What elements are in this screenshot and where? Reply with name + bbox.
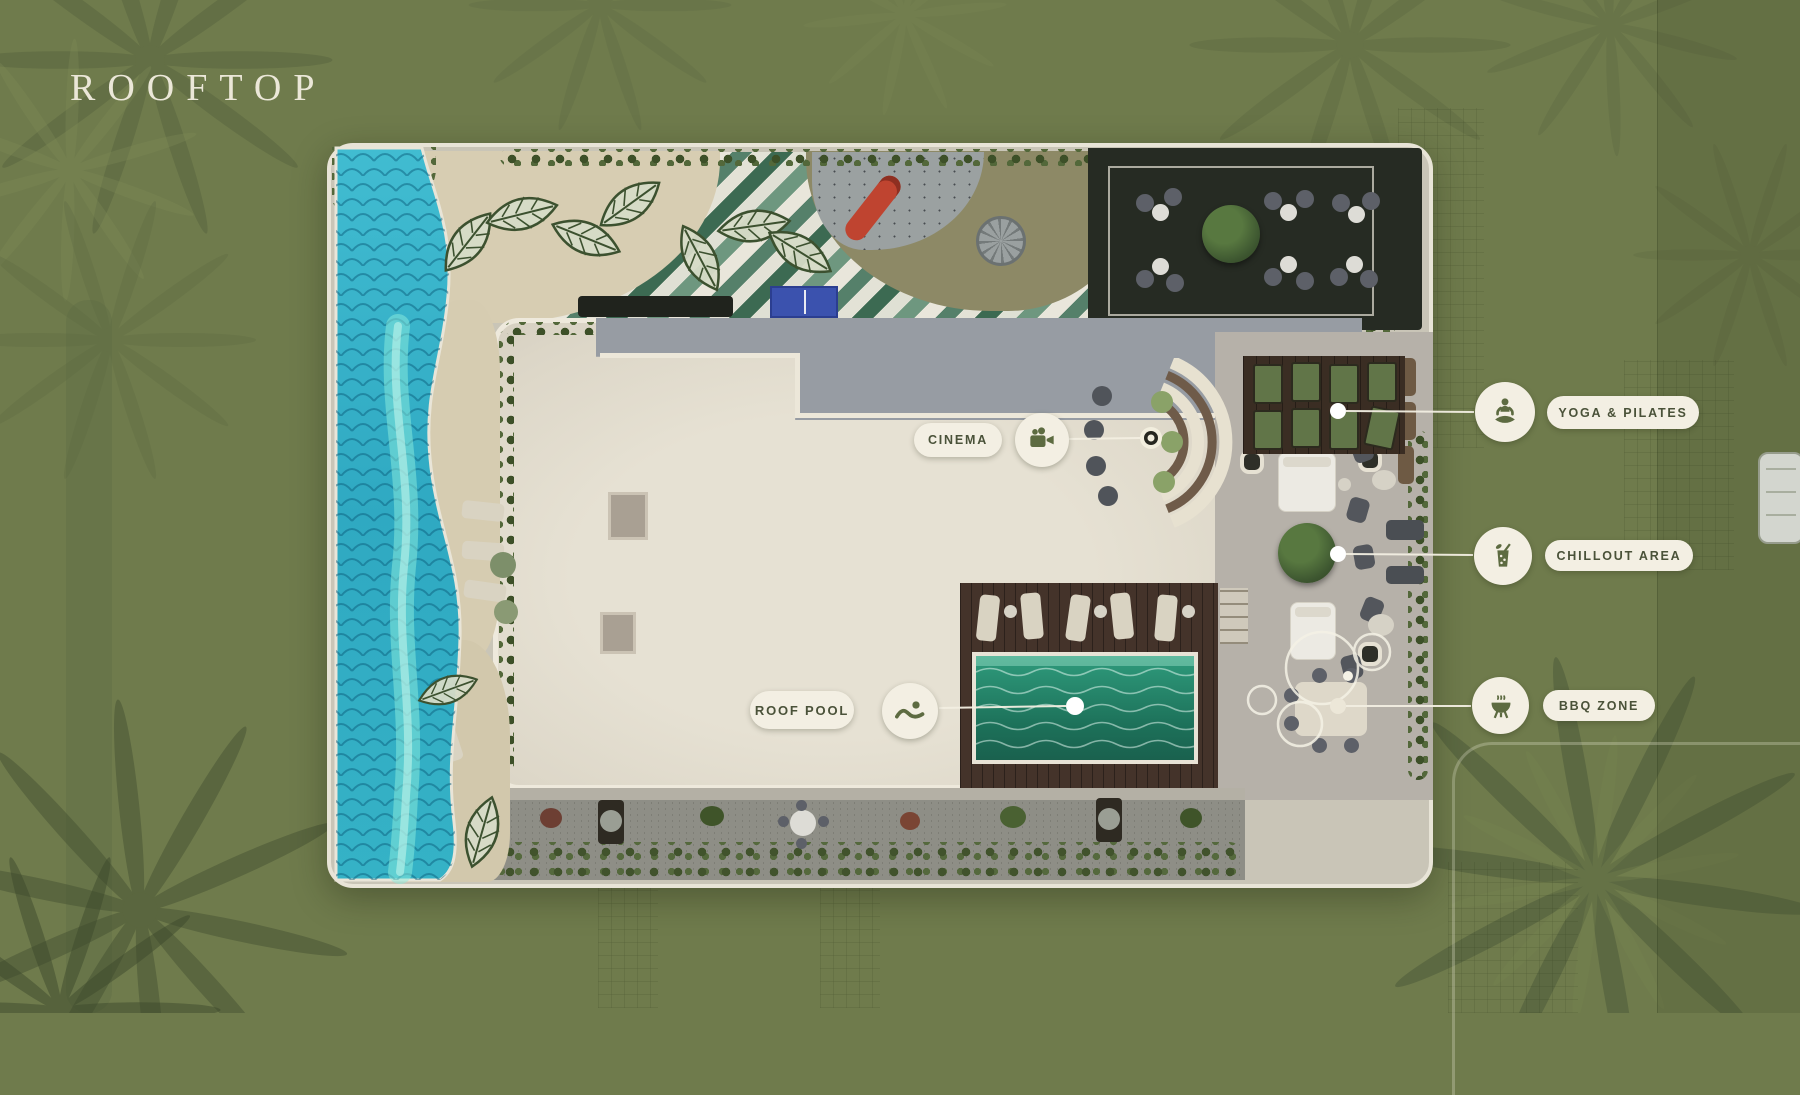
roof-pool-label: ROOF POOL: [755, 703, 849, 718]
lawn-grid-patch: [1624, 360, 1734, 570]
roof-skylight: [600, 612, 636, 654]
hedge: [505, 322, 603, 335]
yoga-deck: [1243, 356, 1405, 454]
chillout-icon-circle: [1474, 527, 1532, 585]
video-camera-icon: [1028, 426, 1056, 454]
bbq-label-pill: BBQ ZONE: [1543, 690, 1655, 721]
roof-skylight: [608, 492, 648, 540]
bbq-icon-circle: [1472, 677, 1529, 734]
bbq-label: BBQ ZONE: [1559, 699, 1639, 713]
drink-icon: [1488, 541, 1518, 571]
parked-van: [1758, 452, 1800, 544]
terrace-tree: [1202, 205, 1260, 263]
yoga-label: YOGA & PILATES: [1558, 406, 1687, 420]
yoga-icon-circle: [1475, 382, 1535, 442]
roof-pool-label-pill: ROOF POOL: [750, 691, 854, 729]
bbq-grill-icon: [1486, 691, 1516, 721]
rooftop-plan-page: { "title": "ROOFTOP", "plan_callouts": {…: [0, 0, 1800, 1013]
swimmer-icon: [895, 696, 925, 726]
cinema-label: CINEMA: [928, 433, 988, 447]
beach-deck: [430, 300, 500, 660]
roof-pool-icon-circle: [882, 683, 938, 739]
planter-ledge: [578, 296, 733, 317]
merry-go-round: [976, 216, 1026, 266]
lawn-grid-patch: [598, 888, 658, 1008]
page-title: ROOFTOP: [70, 66, 326, 110]
chillout-label-pill: CHILLOUT AREA: [1545, 540, 1693, 571]
lawn-grid-patch: [820, 888, 880, 1008]
parapet-edge: [600, 353, 798, 358]
yoga-label-pill: YOGA & PILATES: [1547, 396, 1699, 429]
deck-steps: [1220, 588, 1248, 644]
garden-hedge: [450, 842, 1240, 880]
chillout-label: CHILLOUT AREA: [1556, 549, 1681, 563]
roof-pool-water: [972, 652, 1198, 764]
parapet-edge: [795, 353, 800, 417]
ground-walkway-outline: [1452, 742, 1800, 1095]
table-tennis-table: [770, 286, 838, 318]
cinema-icon-circle: [1015, 413, 1069, 467]
meditation-icon: [1489, 396, 1521, 428]
cinema-label-pill: CINEMA: [914, 423, 1002, 457]
hedge: [500, 149, 1092, 166]
